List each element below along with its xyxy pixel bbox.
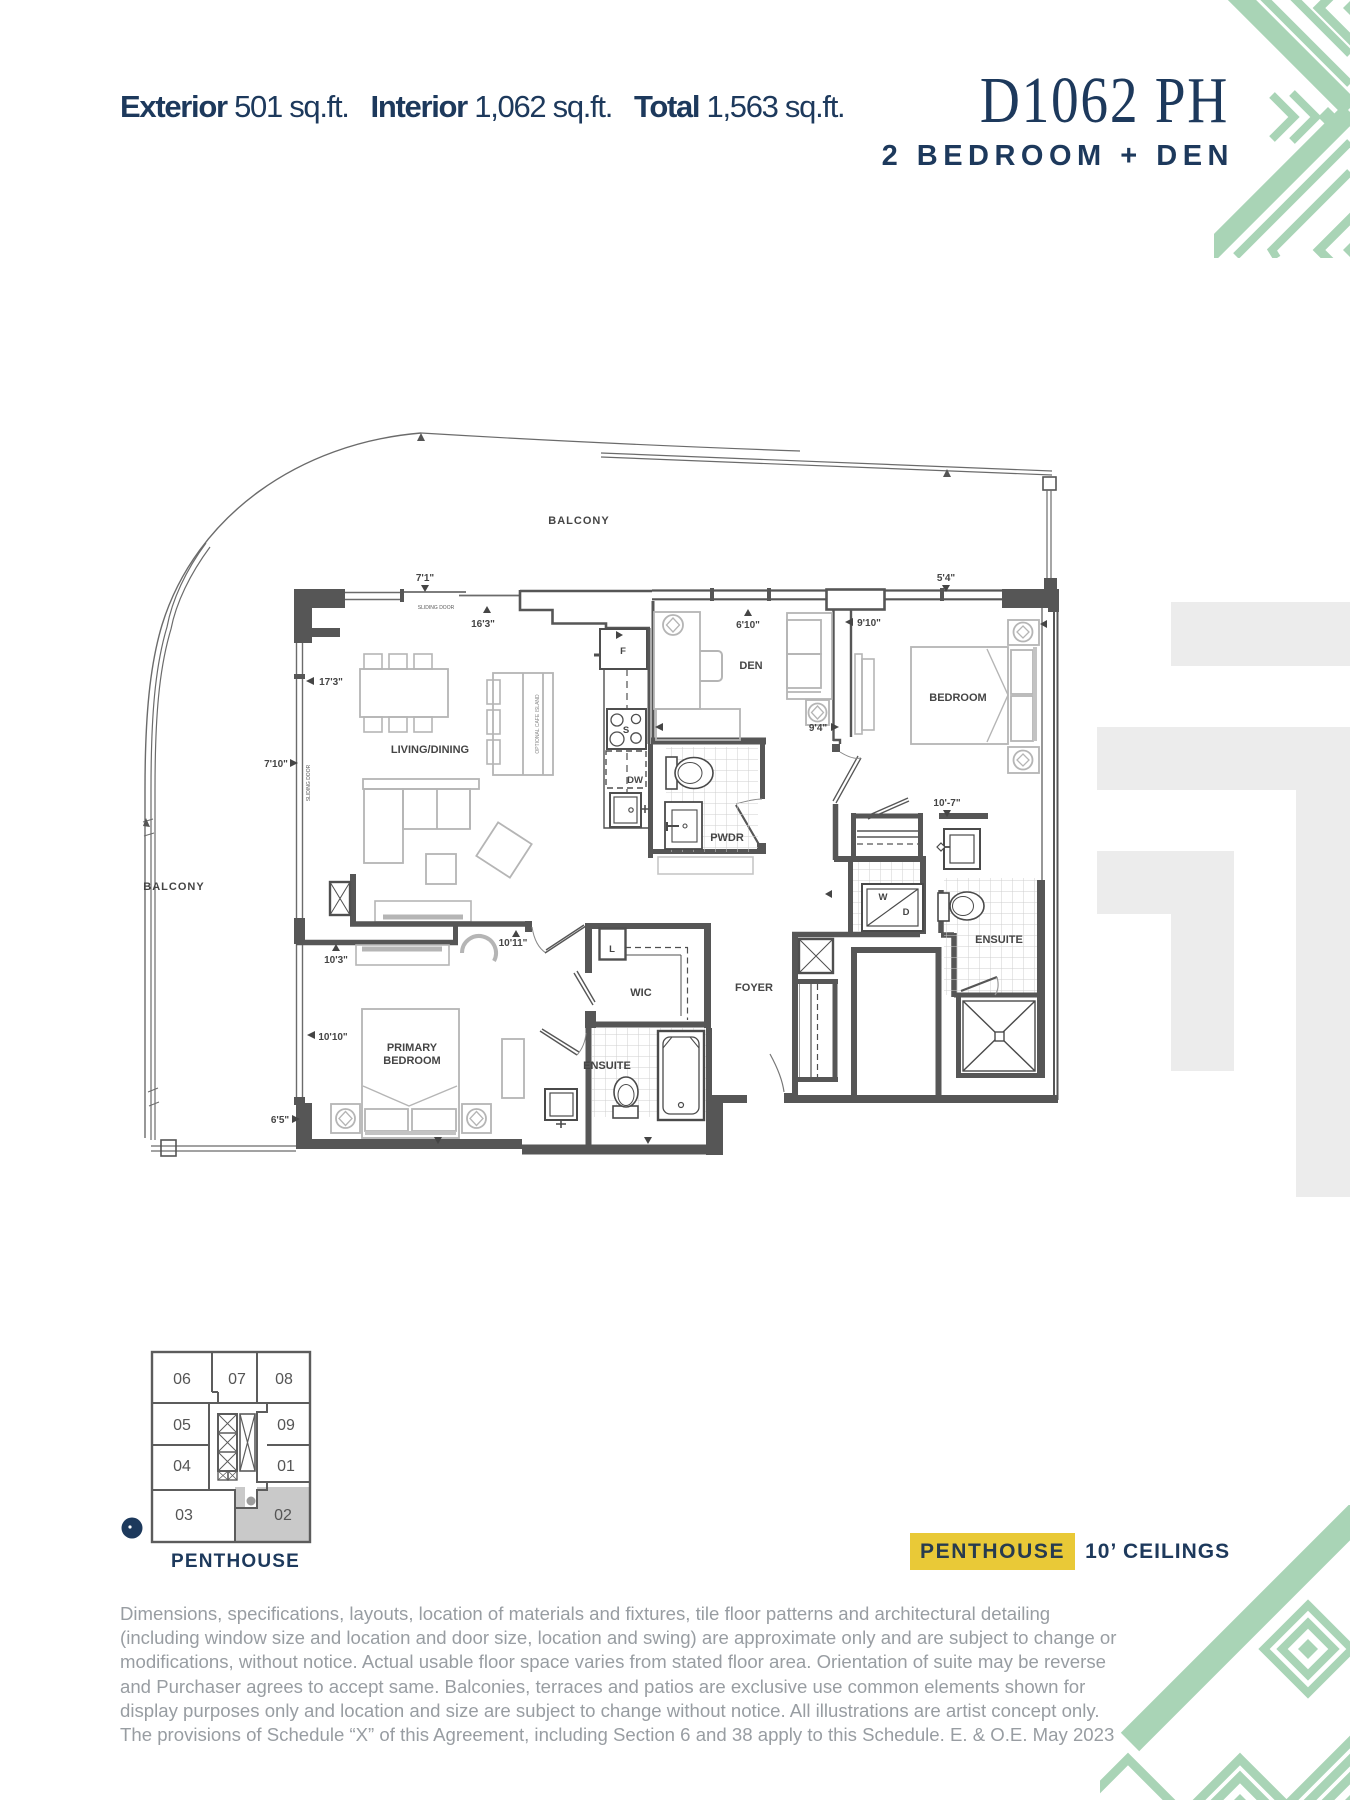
- svg-text:SLIDING DOOR: SLIDING DOOR: [418, 605, 455, 611]
- svg-text:10'3": 10'3": [324, 955, 348, 966]
- svg-text:L: L: [609, 944, 615, 955]
- svg-text:BEDROOM: BEDROOM: [383, 1055, 440, 1067]
- svg-text:04: 04: [173, 1458, 191, 1475]
- svg-text:BALCONY: BALCONY: [143, 881, 204, 893]
- svg-text:10'-7": 10'-7": [933, 798, 960, 809]
- svg-text:5'4": 5'4": [937, 573, 956, 584]
- svg-text:OPTIONAL CAFE ISLAND: OPTIONAL CAFE ISLAND: [535, 694, 541, 754]
- svg-text:03: 03: [175, 1507, 193, 1524]
- svg-text:ENSUITE: ENSUITE: [583, 1060, 631, 1072]
- svg-text:7'10": 7'10": [264, 759, 288, 770]
- svg-text:SLIDING DOOR: SLIDING DOOR: [306, 764, 312, 801]
- svg-text:ENSUITE: ENSUITE: [975, 934, 1023, 946]
- svg-text:07: 07: [228, 1371, 246, 1388]
- svg-text:09: 09: [277, 1417, 295, 1434]
- svg-text:W: W: [879, 892, 888, 903]
- svg-text:BEDROOM: BEDROOM: [929, 692, 986, 704]
- svg-text:9'10": 9'10": [857, 618, 881, 629]
- svg-text:6'5": 6'5": [271, 1115, 290, 1126]
- svg-text:7'1": 7'1": [416, 573, 435, 584]
- svg-text:17'3": 17'3": [319, 677, 343, 688]
- svg-text:16'3": 16'3": [471, 619, 495, 630]
- svg-text:10'11": 10'11": [499, 938, 528, 949]
- svg-text:01: 01: [277, 1458, 295, 1475]
- svg-text:WIC: WIC: [630, 987, 651, 999]
- svg-text:05: 05: [173, 1417, 191, 1434]
- svg-text:02: 02: [274, 1507, 292, 1524]
- svg-text:BALCONY: BALCONY: [548, 515, 609, 527]
- svg-text:LIVING/DINING: LIVING/DINING: [391, 744, 469, 756]
- svg-text:PRIMARY: PRIMARY: [387, 1042, 438, 1054]
- svg-text:D: D: [903, 907, 910, 918]
- svg-text:10'10": 10'10": [318, 1032, 348, 1043]
- svg-text:9'4": 9'4": [809, 723, 828, 734]
- svg-text:FOYER: FOYER: [735, 982, 773, 994]
- svg-text:08: 08: [275, 1371, 293, 1388]
- svg-text:6'10": 6'10": [736, 620, 760, 631]
- svg-text:06: 06: [173, 1371, 191, 1388]
- svg-text:F: F: [620, 646, 626, 657]
- svg-text:DW: DW: [627, 775, 643, 786]
- svg-text:PWDR: PWDR: [710, 832, 744, 844]
- svg-text:S: S: [623, 725, 629, 736]
- svg-text:DEN: DEN: [739, 660, 762, 672]
